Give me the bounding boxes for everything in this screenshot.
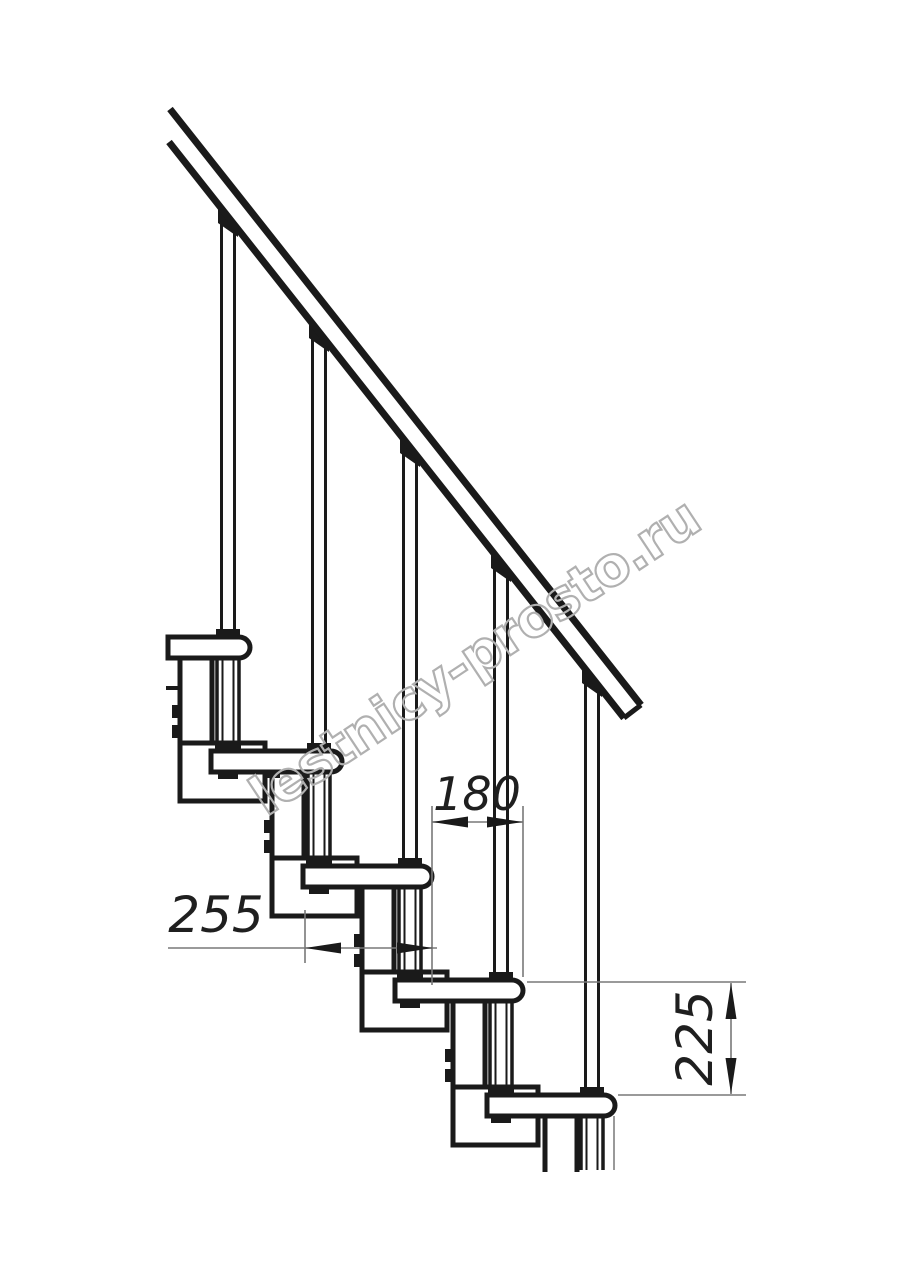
dimension-step-rise: 225 <box>527 982 746 1095</box>
module-column-cut <box>545 1116 577 1172</box>
baluster-rods <box>222 222 599 1088</box>
module-column <box>453 1001 485 1087</box>
tread-1 <box>168 637 250 658</box>
dim-225-label: 225 <box>666 990 724 1085</box>
dim-255-label: 255 <box>168 886 263 944</box>
arrowhead-up <box>726 983 737 1019</box>
module-column <box>272 772 304 858</box>
dimension-step-run: 180 <box>432 767 523 985</box>
tread-2 <box>211 751 342 772</box>
module-column <box>180 658 212 743</box>
tread-5 <box>487 1095 615 1116</box>
tread-3 <box>303 866 432 887</box>
tread-4 <box>395 980 523 1001</box>
treads <box>168 637 615 1116</box>
dim-180-label: 180 <box>433 767 521 821</box>
arrowhead-down <box>726 1058 737 1094</box>
drawing-svg: 180 255 225 <box>0 0 914 1280</box>
module-column <box>362 887 394 972</box>
handrail-top-edge <box>170 109 641 705</box>
handrail-end-cap <box>624 705 641 718</box>
staircase-technical-drawing: 180 255 225 lestnicy-prosto.ru <box>0 0 914 1280</box>
arrowhead-left <box>305 943 341 954</box>
